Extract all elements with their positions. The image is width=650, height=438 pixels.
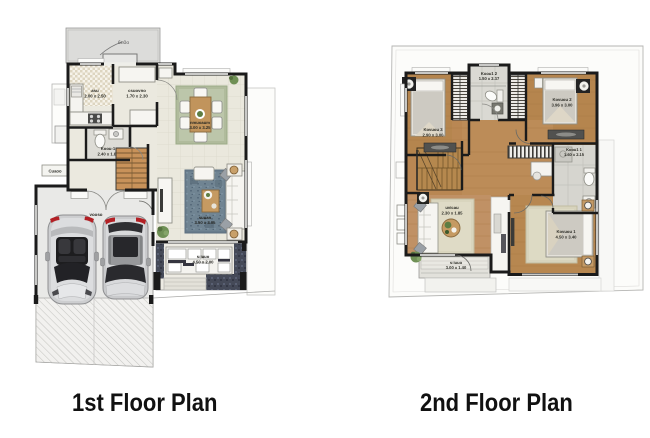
svg-text:Koou-1: Koou-1 [101,146,116,151]
svg-text:1.70 x 2.30: 1.70 x 2.30 [126,94,148,99]
svg-text:csuovno: csuovno [128,88,146,93]
svg-text:2.90 x 3.00: 2.90 x 3.00 [423,133,445,138]
svg-text:3.50 x 3.05: 3.50 x 3.05 [195,220,217,225]
svg-text:3.00 x 1.40: 3.00 x 1.40 [446,265,467,270]
svg-text:3.96 x 3.00: 3.96 x 3.00 [552,103,574,108]
svg-text:2.00 x 2.50: 2.00 x 2.50 [84,94,106,99]
svg-text:Kovuou 2: Kovuou 2 [552,97,572,102]
svg-text:3.00 x 3.25: 3.00 x 3.25 [190,125,212,130]
svg-text:2.30 x 1.85: 2.30 x 1.85 [442,211,464,216]
svg-text:vooso: vooso [90,212,103,217]
svg-text:Kovuou 1: Kovuou 1 [556,229,576,234]
svg-text:s:iuuo: s:iuuo [197,254,210,259]
svg-text:4.50 x 2.00: 4.50 x 2.00 [193,260,215,265]
svg-text:asu: asu [91,88,99,93]
svg-text:uvicau: uvicau [445,205,459,210]
svg-text:1.50 x 2.37: 1.50 x 2.37 [479,76,500,81]
svg-text:1.60 x 2.15: 1.60 x 2.15 [564,152,585,157]
svg-text:Cuaoo: Cuaoo [48,169,61,174]
svg-text:Kovuou 3: Kovuou 3 [423,127,443,132]
svg-text:6n0o: 6n0o [118,40,129,46]
svg-text:4.50 x 3.40: 4.50 x 3.40 [556,235,578,240]
